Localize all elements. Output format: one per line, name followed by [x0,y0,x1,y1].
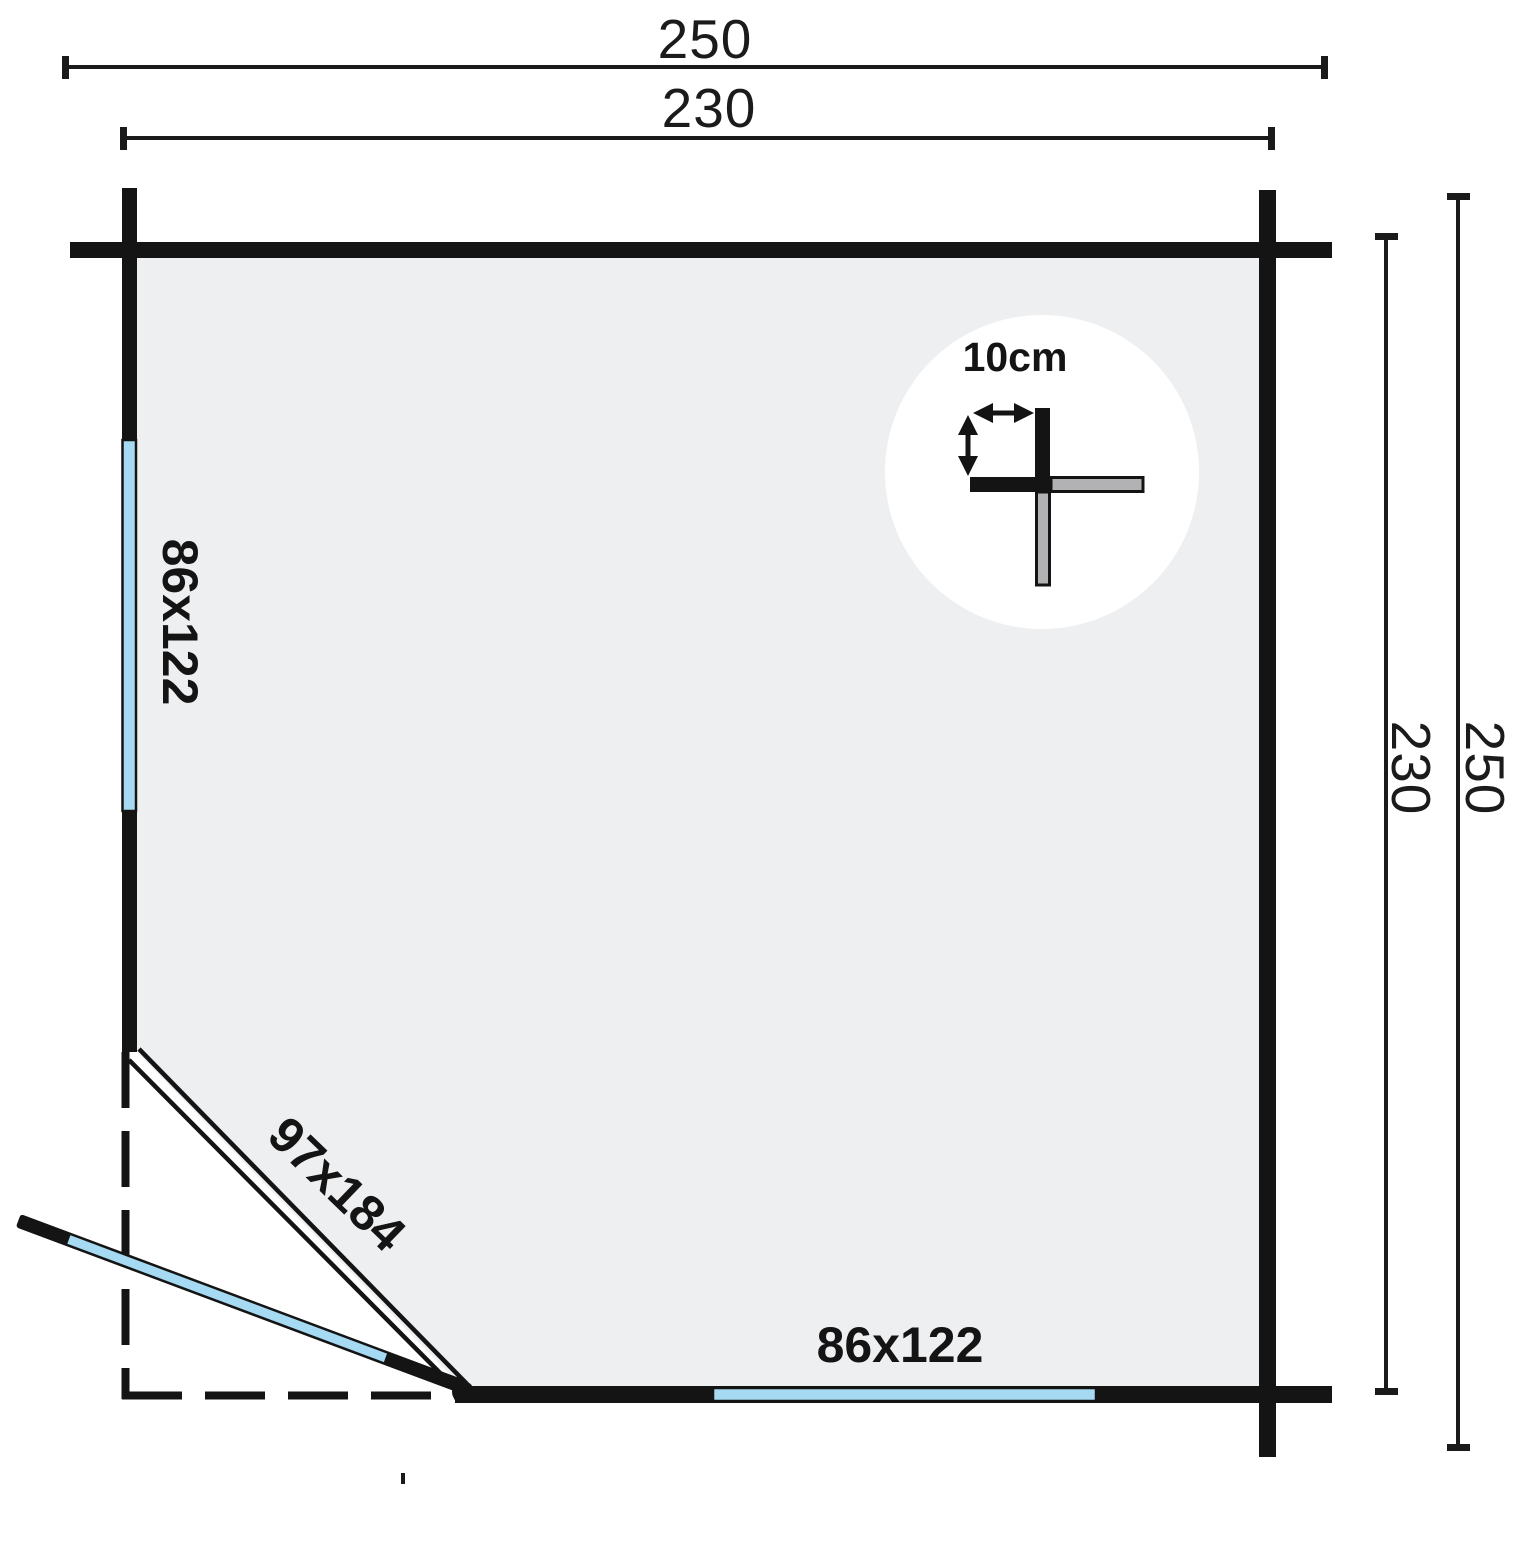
dimension-right-outer-tick-top [1447,193,1470,200]
log-cross-horizontal-black [970,477,1052,492]
detail-bubble: 10cm [885,315,1199,629]
dimension-right-outer: 250 [1447,193,1516,1451]
log-cross-vertical-grey [1037,492,1050,585]
window-left-label: 86x122 [152,539,208,706]
dimension-right-inner-tick-bottom [1375,1388,1398,1395]
floor-plan-svg: 250 230 230 250 86x122 [0,0,1536,1545]
detail-thickness-label: 10cm [963,334,1068,380]
wall-left-upper [122,188,137,439]
wall-left-lower [122,811,137,1052]
dimension-top-inner-tick-left [120,127,127,150]
door-hinge [452,1381,474,1403]
dimension-top-inner-tick-right [1268,127,1275,150]
dimension-top-inner: 230 [120,77,1275,150]
dimension-right-inner-label: 230 [1380,721,1442,816]
dimension-right-outer-tick-bottom [1447,1444,1470,1451]
dimension-top-outer-tick-left [62,56,69,79]
window-bottom-label: 86x122 [817,1317,984,1373]
dimension-right-inner-tick-top [1375,233,1398,240]
stray-tick [401,1473,405,1484]
dimension-right-outer-label: 250 [1454,721,1516,816]
log-cross-horizontal-grey [1051,478,1143,492]
dimension-right-inner: 230 [1375,233,1442,1395]
dimension-top-outer: 250 [62,8,1328,79]
dimension-top-inner-label: 230 [662,77,757,139]
wall-top [70,242,1332,258]
window-left [123,440,137,811]
dimension-top-outer-tick-right [1321,56,1328,79]
floor-plan-page: 250 230 230 250 86x122 [0,0,1536,1545]
dimension-top-outer-label: 250 [658,8,753,70]
wall-right [1259,190,1276,1457]
window-bottom [713,1388,1096,1401]
log-cross-vertical-black [1035,408,1050,486]
